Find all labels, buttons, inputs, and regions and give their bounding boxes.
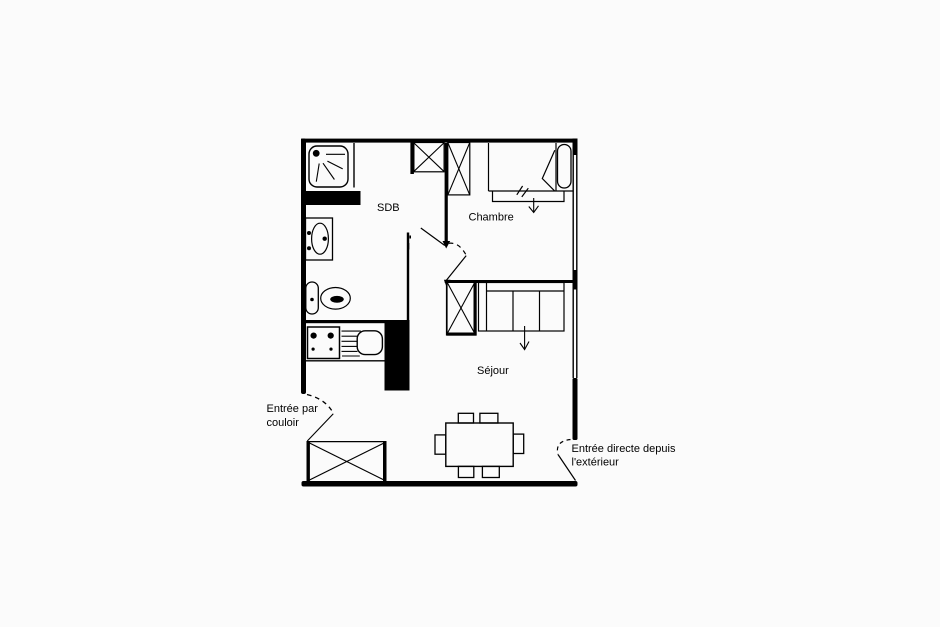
svg-text:Entrée directe depuis: Entrée directe depuis — [572, 443, 676, 455]
svg-text:SDB: SDB — [377, 202, 400, 214]
svg-text:Entrée par: Entrée par — [267, 403, 319, 415]
svg-text:l'extérieur: l'extérieur — [572, 457, 620, 469]
svg-text:Chambre: Chambre — [469, 212, 514, 224]
svg-text:Séjour: Séjour — [477, 365, 509, 377]
svg-text:couloir: couloir — [267, 417, 300, 429]
